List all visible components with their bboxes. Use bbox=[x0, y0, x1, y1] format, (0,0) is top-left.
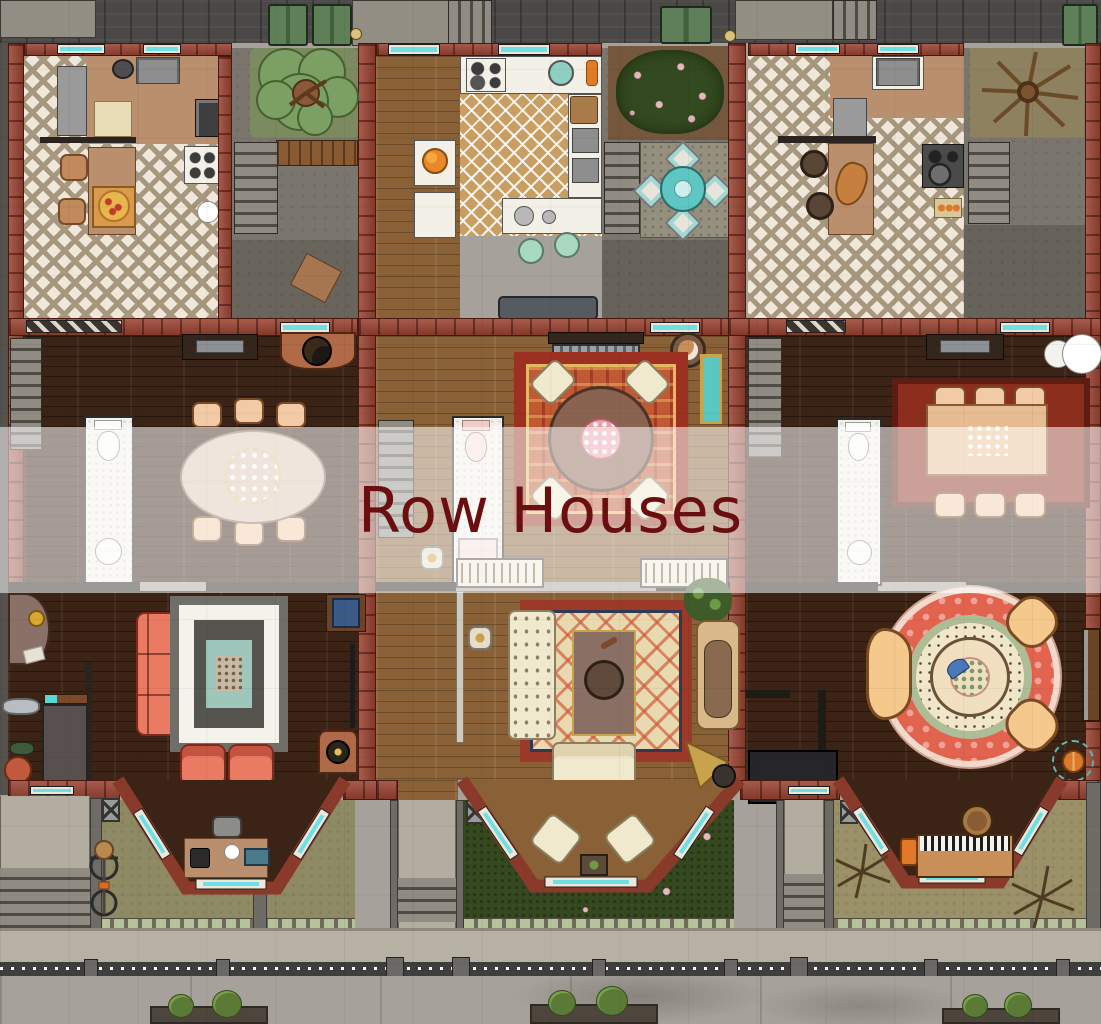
yard-wall bbox=[390, 800, 398, 932]
tray bbox=[195, 99, 219, 137]
concrete-pad bbox=[352, 0, 450, 46]
desk-chair bbox=[212, 816, 242, 838]
plate bbox=[197, 201, 219, 223]
sink-icon bbox=[572, 158, 599, 183]
yard-wall bbox=[456, 800, 464, 932]
row-houses-map: Row Houses bbox=[0, 0, 1101, 1024]
chevron-shelf bbox=[786, 320, 846, 333]
interior-wall bbox=[218, 56, 232, 320]
cabinet bbox=[414, 192, 456, 238]
flower-table bbox=[580, 854, 608, 876]
green-dumpster-icon bbox=[312, 4, 352, 46]
counter-divider bbox=[40, 137, 136, 143]
standing-mirror-icon bbox=[700, 354, 722, 424]
pot bbox=[542, 210, 556, 224]
case-icon bbox=[244, 848, 270, 866]
flowering-bush-icon bbox=[616, 50, 724, 134]
muffin-tray bbox=[934, 198, 962, 218]
kettle-icon bbox=[112, 59, 134, 79]
rug-center bbox=[216, 656, 242, 692]
stool-icon bbox=[554, 232, 580, 258]
gold-plate bbox=[28, 610, 45, 627]
round-stool-table bbox=[960, 804, 994, 838]
planter-foliage-icon bbox=[1004, 992, 1032, 1018]
back-wall bbox=[24, 43, 232, 56]
wall-bench bbox=[1082, 628, 1101, 722]
stove-icon bbox=[466, 58, 506, 92]
hallway-floor-middle bbox=[376, 56, 460, 320]
front-steps bbox=[784, 874, 824, 930]
planter-foliage-icon bbox=[596, 986, 628, 1016]
green-dumpster-icon bbox=[660, 6, 712, 44]
coral-armchair-icon bbox=[228, 744, 274, 786]
window-icon bbox=[388, 44, 440, 55]
planter-foliage-icon bbox=[168, 994, 194, 1018]
chevron-shelf bbox=[26, 320, 122, 333]
chair bbox=[58, 198, 86, 225]
planter-foliage-icon bbox=[548, 990, 576, 1016]
front-wall bbox=[343, 780, 378, 800]
front-steps bbox=[398, 878, 456, 922]
planter-foliage-icon bbox=[962, 994, 988, 1018]
window-icon bbox=[788, 786, 830, 795]
yard-shadow bbox=[232, 240, 358, 320]
map-title: Row Houses bbox=[358, 474, 743, 547]
window-icon bbox=[498, 44, 550, 55]
basement-stairs bbox=[968, 142, 1010, 224]
title-overlay-band: Row Houses bbox=[0, 427, 1101, 593]
bench-head bbox=[44, 694, 88, 704]
back-alley bbox=[0, 0, 1101, 43]
double-sink-icon bbox=[136, 57, 180, 84]
stool-icon bbox=[806, 192, 834, 220]
planter-foliage-icon bbox=[212, 990, 242, 1018]
yard-wall bbox=[90, 798, 102, 930]
dining-chair bbox=[276, 402, 306, 428]
doorway bbox=[396, 780, 458, 800]
stool-icon bbox=[518, 238, 544, 264]
concrete-pad bbox=[0, 0, 96, 38]
loveseat-icon bbox=[552, 742, 636, 788]
chair bbox=[60, 154, 88, 181]
porch-lamp-icon bbox=[466, 800, 484, 824]
plate bbox=[1062, 334, 1101, 374]
stool-icon bbox=[800, 150, 828, 178]
window-icon bbox=[650, 322, 700, 333]
window-icon bbox=[1000, 322, 1050, 333]
porch-lamp-icon bbox=[840, 800, 858, 824]
wood-steps bbox=[276, 140, 358, 166]
alley-stairs bbox=[448, 0, 492, 46]
stove-icon bbox=[922, 144, 964, 188]
orange-ball-icon bbox=[1062, 750, 1085, 773]
chaise-cushion bbox=[704, 640, 732, 718]
shoes-icon bbox=[10, 742, 34, 755]
bollard-lamp-icon bbox=[350, 28, 362, 40]
green-dumpster-icon bbox=[268, 4, 308, 46]
blue-chest bbox=[332, 598, 360, 628]
plate bbox=[224, 844, 240, 860]
yard-shadow bbox=[964, 225, 1085, 320]
wall-stub bbox=[746, 690, 790, 698]
refrigerator-icon bbox=[57, 66, 87, 136]
daybed-icon bbox=[42, 704, 88, 786]
yard-wall bbox=[824, 800, 834, 932]
mixing-bowl bbox=[548, 60, 574, 86]
window-icon bbox=[877, 44, 919, 54]
tray bbox=[940, 340, 990, 353]
stove-icon bbox=[184, 146, 220, 184]
silver-tray bbox=[2, 698, 40, 715]
fireplace-grate bbox=[302, 336, 332, 366]
refrigerator-icon bbox=[833, 98, 867, 138]
basement-stairs bbox=[234, 142, 278, 234]
coral-armchair-icon bbox=[180, 744, 226, 786]
side-passage bbox=[0, 43, 8, 795]
bollard-lamp-icon bbox=[724, 30, 736, 42]
sideboard bbox=[548, 332, 644, 344]
front-wall bbox=[376, 780, 398, 800]
hall-partition bbox=[456, 591, 464, 743]
flower-planter bbox=[942, 1008, 1060, 1024]
window-icon bbox=[143, 44, 181, 54]
grass-pad bbox=[250, 48, 358, 138]
cutting-board bbox=[570, 96, 598, 124]
yard-shadow bbox=[602, 240, 728, 320]
patio-table-center bbox=[674, 180, 692, 198]
typewriter-icon bbox=[190, 848, 210, 868]
front-steps bbox=[0, 868, 90, 930]
house-wall bbox=[358, 43, 376, 782]
counter-divider bbox=[778, 136, 876, 143]
tray bbox=[196, 340, 244, 353]
bench bbox=[498, 296, 598, 320]
window-icon bbox=[795, 44, 840, 54]
floor-lamp-icon bbox=[468, 626, 492, 650]
sink-icon bbox=[572, 128, 599, 153]
window-icon bbox=[57, 44, 105, 54]
coffee-table-icon bbox=[584, 660, 624, 700]
porch-lamp-icon bbox=[102, 798, 120, 822]
cabinet bbox=[94, 101, 132, 137]
green-dumpster-icon bbox=[1062, 4, 1098, 46]
back-wall bbox=[748, 43, 964, 56]
concrete-pad bbox=[735, 0, 833, 40]
pot bbox=[514, 206, 534, 226]
alley-stairs bbox=[833, 0, 877, 40]
window-icon bbox=[30, 786, 74, 795]
yard-wall bbox=[1086, 782, 1101, 932]
yard-wall bbox=[776, 800, 784, 932]
carrots-icon bbox=[586, 60, 598, 86]
dirt-pad bbox=[970, 48, 1084, 138]
tufted-sofa-icon bbox=[508, 610, 556, 740]
hearth-fire-icon bbox=[326, 740, 350, 764]
piano-stool-icon bbox=[900, 838, 918, 866]
fruit-bowl-icon bbox=[422, 148, 448, 174]
dining-chair bbox=[234, 398, 264, 424]
double-sink-icon bbox=[876, 58, 920, 86]
weapon-rack bbox=[350, 644, 355, 728]
pizza-icon bbox=[98, 190, 130, 222]
wedge-armchair-icon bbox=[866, 628, 912, 720]
dining-chair bbox=[192, 402, 222, 428]
piano-keys-icon bbox=[920, 836, 1010, 851]
